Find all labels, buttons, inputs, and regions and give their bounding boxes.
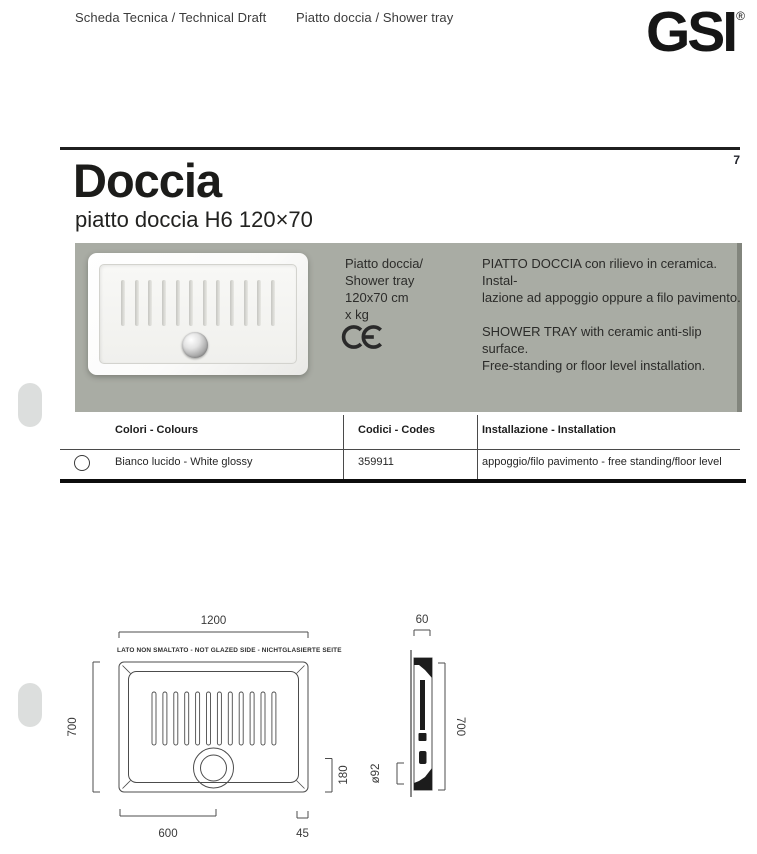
tray-antislip-ribs <box>121 280 275 326</box>
binder-pill <box>18 683 42 727</box>
dim-side-thickness: 60 <box>416 614 429 626</box>
description-it-line: lazione ad appoggio oppure a filo pavime… <box>482 289 742 306</box>
tray-drain-icon <box>182 332 208 358</box>
header-divider <box>60 147 740 150</box>
dim-side-height: 700 <box>454 717 466 736</box>
description-it-line: PIATTO DOCCIA con rilievo in ceramica. I… <box>482 255 742 289</box>
ce-mark-icon <box>341 323 383 351</box>
product-info-line: 120x70 cm <box>345 289 423 306</box>
shower-tray-photo <box>88 253 308 375</box>
gsi-logo-text: GSI <box>646 4 735 60</box>
product-info-line: Shower tray <box>345 272 423 289</box>
product-description: PIATTO DOCCIA con rilievo in ceramica. I… <box>482 255 742 374</box>
installation-column-header: Installazione - Installation <box>482 424 616 436</box>
table-bottom-rule <box>60 479 746 483</box>
technical-drawing: 1200 LATO NON SMALTATO - NOT GLAZED SIDE… <box>55 594 485 854</box>
registered-trademark-icon: ® <box>736 9 745 23</box>
dim-edge-margin: 45 <box>296 828 309 840</box>
product-type-label: Piatto doccia / Shower tray <box>296 10 453 25</box>
color-swatch <box>74 455 90 471</box>
page-number: 7 <box>700 153 740 167</box>
table-header-divider <box>60 449 740 450</box>
installation-cell: appoggio/filo pavimento - free standing/… <box>482 456 722 468</box>
not-glazed-side-note: LATO NON SMALTATO - NOT GLAZED SIDE - NI… <box>117 647 342 654</box>
colors-column-header: Colori - Colours <box>115 424 198 436</box>
product-info: Piatto doccia/ Shower tray 120x70 cm x k… <box>345 255 423 323</box>
dim-drain-diameter: ø92 <box>370 764 382 784</box>
dim-top-height: 700 <box>67 717 79 736</box>
dim-top-width: 1200 <box>201 615 227 627</box>
code-cell: 359911 <box>358 456 394 468</box>
color-name-cell: Bianco lucido - White glossy <box>115 456 253 468</box>
product-summary-block: Piatto doccia/ Shower tray 120x70 cm x k… <box>75 243 742 412</box>
dim-drain-from-bottom: 180 <box>338 765 350 784</box>
page-subtitle: piatto doccia H6 120×70 <box>75 207 313 233</box>
dim-drain-from-left: 600 <box>158 828 177 840</box>
datasheet-page: Scheda Tecnica / Technical Draft Piatto … <box>0 0 757 854</box>
brand-logo: GSI ® <box>646 4 745 60</box>
product-info-line: x kg <box>345 306 423 323</box>
codes-column-header: Codici - Codes <box>358 424 435 436</box>
doc-type-label: Scheda Tecnica / Technical Draft <box>75 10 266 25</box>
product-info-line: Piatto doccia/ <box>345 255 423 272</box>
table-column-divider <box>343 415 344 479</box>
binder-pill <box>18 383 42 427</box>
page-title: Doccia <box>73 157 221 205</box>
description-en-line: SHOWER TRAY with ceramic anti-slip surfa… <box>482 323 742 357</box>
description-en-line: Free-standing or floor level installatio… <box>482 357 742 374</box>
table-column-divider <box>477 415 478 479</box>
